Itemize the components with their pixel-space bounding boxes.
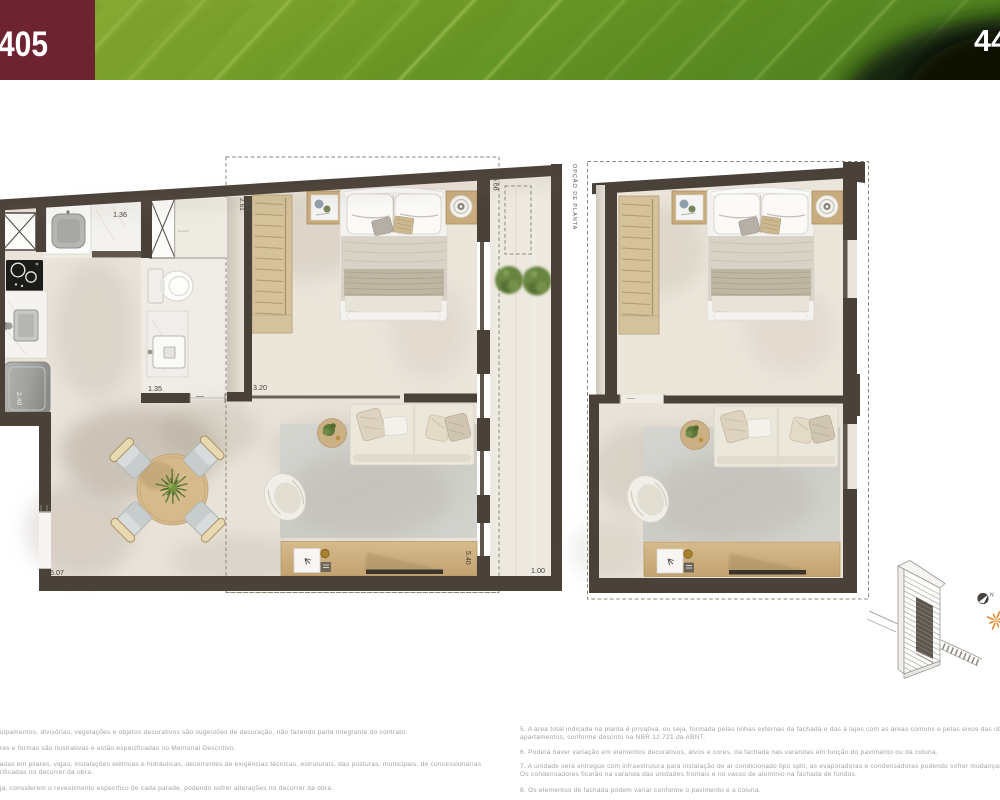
svg-text:405: 405 [0,25,48,64]
svg-text:6. Poderá haver variação em el: 6. Poderá haver variação em elementos de… [520,749,938,756]
svg-text:Os condensadores ficarão na va: Os condensadores ficarão na varanda das … [520,771,857,778]
svg-text:8. Os elementos de fachada pod: 8. Os elementos de fachada podem variar … [520,787,761,794]
svg-text:1.35: 1.35 [148,384,162,393]
svg-text:chuveiro: chuveiro [178,229,190,233]
svg-text:quipamentos, divisórias, veget: quipamentos, divisórias, vegetações e ob… [0,729,407,736]
svg-text:6.07: 6.07 [50,568,64,577]
svg-text:N: N [990,593,994,599]
svg-text:apartamentos, conforme descrit: apartamentos, conforme descrito na NBR 1… [520,734,705,741]
svg-text:1.36: 1.36 [113,210,127,219]
svg-text:2.40: 2.40 [15,392,22,405]
svg-text:erificadas no decorrer da obra: erificadas no decorrer da obra. [0,769,93,776]
svg-text:OPÇÃO DE PLANTA: OPÇÃO DE PLANTA [571,164,578,230]
svg-text:44: 44 [974,23,1000,58]
svg-text:ores e formas são ilustrativas: ores e formas são ilustrativas e estão e… [0,745,236,752]
svg-text:7. A unidade será entregue com: 7. A unidade será entregue com infraestr… [520,763,1000,770]
svg-text:1.00: 1.00 [531,566,545,575]
svg-text:eja, considerem o revestimento: eja, considerem o revestimento específic… [0,785,333,792]
svg-text:2.61: 2.61 [238,198,245,211]
svg-text:sadas em pilares, vigas, insta: sadas em pilares, vigas, instalações elé… [0,761,482,768]
svg-text:3.20: 3.20 [253,383,267,392]
svg-text:5.40: 5.40 [464,551,471,565]
svg-text:5. A área total indicada na pl: 5. A área total indicada na planta é pri… [520,726,1000,733]
